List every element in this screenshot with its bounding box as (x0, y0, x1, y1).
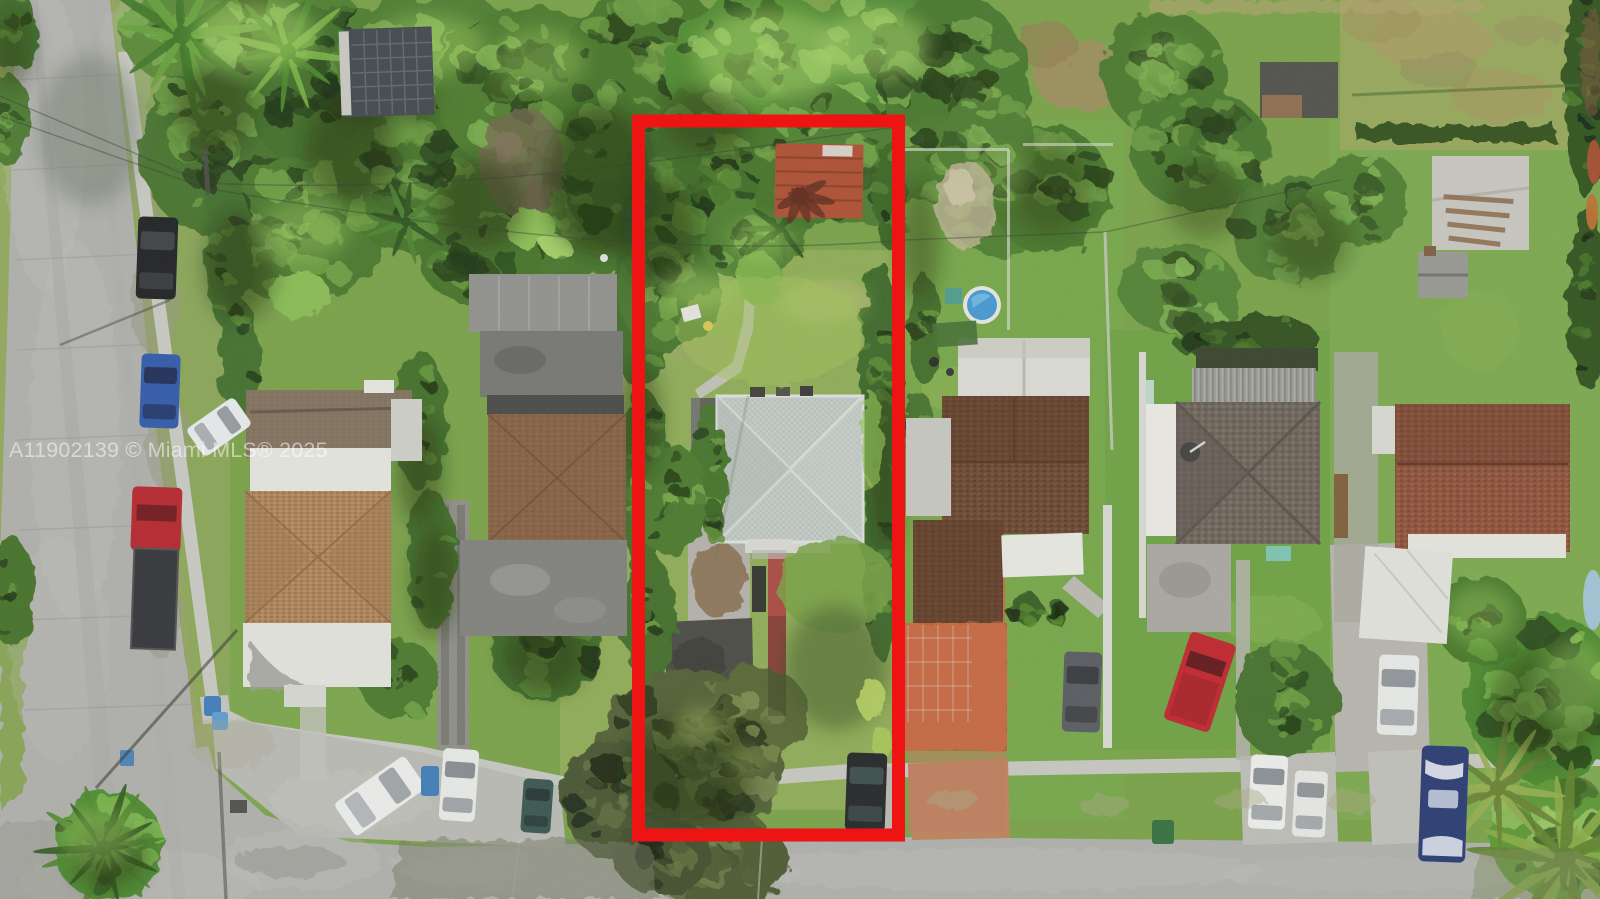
svg-text:A11902139 © Miami MLS® 2025: A11902139 © Miami MLS® 2025 (9, 438, 328, 462)
